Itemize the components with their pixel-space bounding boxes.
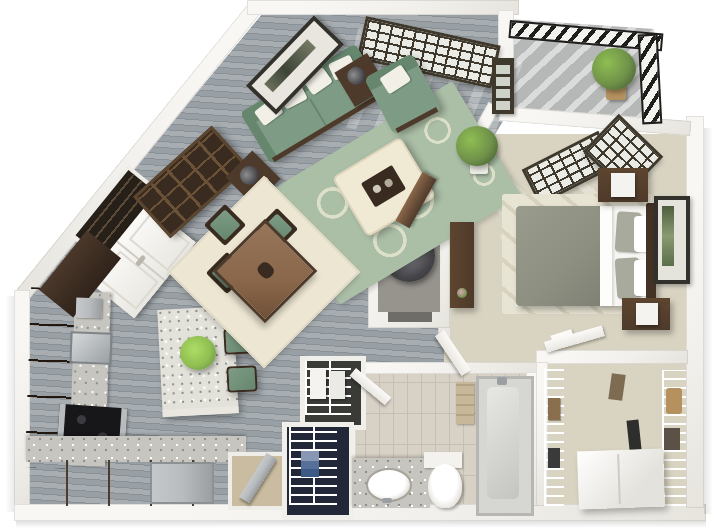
closet-clothes-1 [548, 398, 560, 420]
bathtub-shower [476, 376, 534, 516]
laundry-folded-clothes [301, 451, 319, 477]
closet-clothes-2 [548, 448, 560, 468]
kitchen-dishwasher [150, 462, 214, 504]
kitchen-sink [69, 331, 112, 364]
balcony-door [492, 58, 514, 114]
kitchen-counter-bottom [26, 436, 246, 462]
closet-clothes-4 [664, 428, 680, 450]
nightstand-bottom [622, 298, 670, 330]
bedroom-wall-art [654, 196, 690, 284]
vanity-sink [366, 468, 412, 502]
linen-basket-1 [310, 369, 326, 399]
bathroom-vanity [352, 458, 430, 508]
table-lamp-right [344, 64, 369, 89]
dresser-flowers [457, 288, 467, 298]
laundry-closet [282, 422, 354, 520]
outer-wall-top [247, 0, 519, 15]
nightstand-lamp-top [611, 173, 635, 197]
nightstand-top [598, 168, 648, 202]
closet-dresser [577, 449, 665, 510]
nightstand-lamp-bottom [636, 303, 658, 325]
bed-duvet [516, 206, 600, 306]
kitchen-microwave [76, 298, 103, 319]
exterior-shadow-right [704, 128, 713, 514]
closet-dresser-split [617, 454, 621, 504]
balcony-door-glass [496, 62, 510, 110]
shower-head [497, 377, 507, 385]
closet-clothes-3 [666, 388, 682, 414]
tray-cup-2 [383, 178, 394, 189]
ottoman-tray [361, 165, 406, 208]
sofa-seat-split [309, 98, 328, 128]
linen-basket-2 [330, 371, 345, 399]
floor-plan-canvas [0, 0, 728, 528]
bedroom-art-image [662, 206, 674, 266]
bathtub-basin [487, 387, 519, 499]
tray-cup-1 [371, 183, 382, 194]
floor-plant [456, 126, 498, 166]
vanity-faucet [382, 498, 392, 503]
dining-centerpiece [255, 260, 276, 281]
utility-closet-opening [388, 312, 432, 322]
outer-wall-right [686, 116, 704, 508]
bed-sheet-fold [600, 206, 612, 306]
bar-stool-2 [226, 365, 257, 393]
bedroom-dresser [450, 222, 474, 308]
exterior-shadow-bottom [16, 521, 706, 528]
balcony-plant [592, 48, 636, 90]
closet-wall-top [536, 350, 688, 364]
bed [516, 206, 656, 306]
bathroom-wall-top [346, 362, 538, 374]
bath-towels [456, 382, 474, 424]
island-plant [180, 336, 216, 370]
closet-shelf-left [544, 368, 564, 506]
exterior-shadow-left [5, 296, 14, 512]
toilet-bowl [428, 464, 462, 508]
